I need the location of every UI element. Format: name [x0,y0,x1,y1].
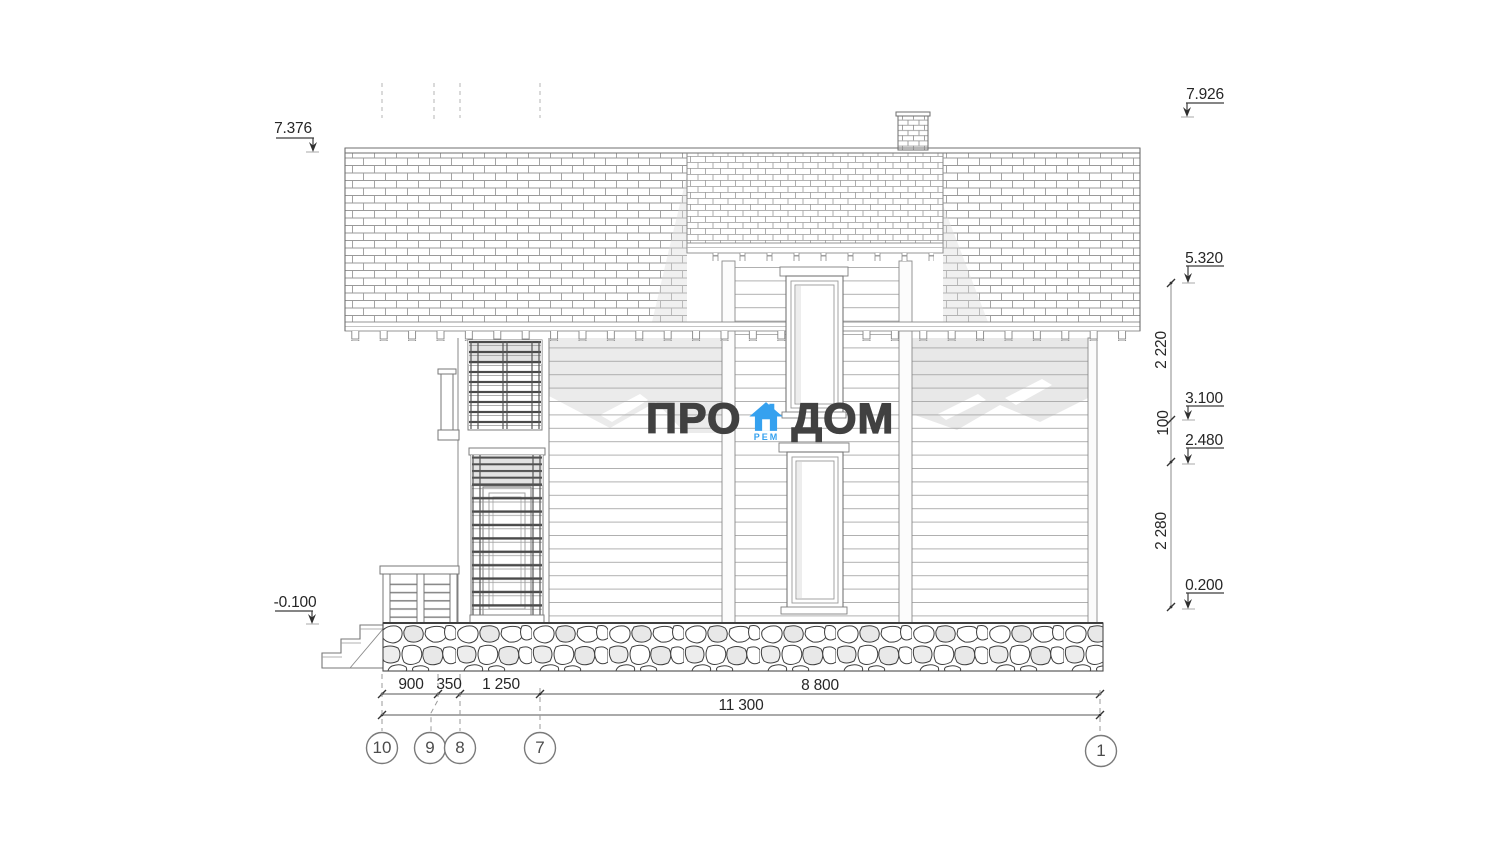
watermark-logo: ПРО РЕМ ДОМ [646,399,894,442]
hdim-label-total-11300: 11 300 [718,697,763,715]
chimney [896,112,930,150]
dormer-lower-window [779,443,849,614]
entry-stairs [322,625,383,668]
hdim-label-350: 350 [436,676,461,694]
logo-text-pro: ПРО [646,399,741,439]
hdim-label-900: 900 [398,676,423,694]
hdim-label-1250: 1 250 [482,676,520,694]
stone-foundation [383,623,1103,671]
porch-post [441,374,453,430]
vertical-dimension-line [1167,279,1175,611]
axis-bubble-7: 7 [535,738,544,758]
axis-bubble-1: 1 [1096,741,1105,761]
porch-trellis-lower [469,448,545,623]
axis-projection-lines [382,83,540,122]
elevation-sheet: 7.376 7.926 5.320 3.100 2.480 0.200 -0.1… [0,0,1500,849]
house-icon [748,401,784,432]
vdim-label-100: 100 [1155,410,1173,435]
axis-bubble-9: 9 [425,738,434,758]
right-wall [912,338,1097,623]
level-label-0200: 0.200 [1185,577,1223,595]
axis-grid-bubbles [367,733,1117,767]
level-label-minus-0100: -0.100 [274,594,317,612]
level-label-2480: 2.480 [1185,432,1223,450]
porch-railing [380,566,459,623]
axis-bubble-8: 8 [455,738,464,758]
level-label-3100: 3.100 [1185,390,1223,408]
porch-trellis-upper [468,340,542,430]
dormer-roof [687,153,943,243]
hdim-label-8800: 8 800 [801,677,839,695]
rafter-tails [346,331,1140,341]
axis-bubble-10: 10 [373,738,392,758]
vdim-label-2280: 2 280 [1153,512,1171,550]
logo-text-rem: РЕМ [754,432,780,442]
dormer-rafter-tails [698,253,934,261]
vdim-label-2220: 2 220 [1153,331,1171,369]
left-wall [549,338,722,623]
level-label-5320: 5.320 [1185,250,1223,268]
level-label-7376: 7.376 [274,120,312,138]
logo-text-dom: ДОМ [791,399,894,439]
level-label-7926: 7.926 [1186,86,1224,104]
downspout [1088,338,1097,623]
